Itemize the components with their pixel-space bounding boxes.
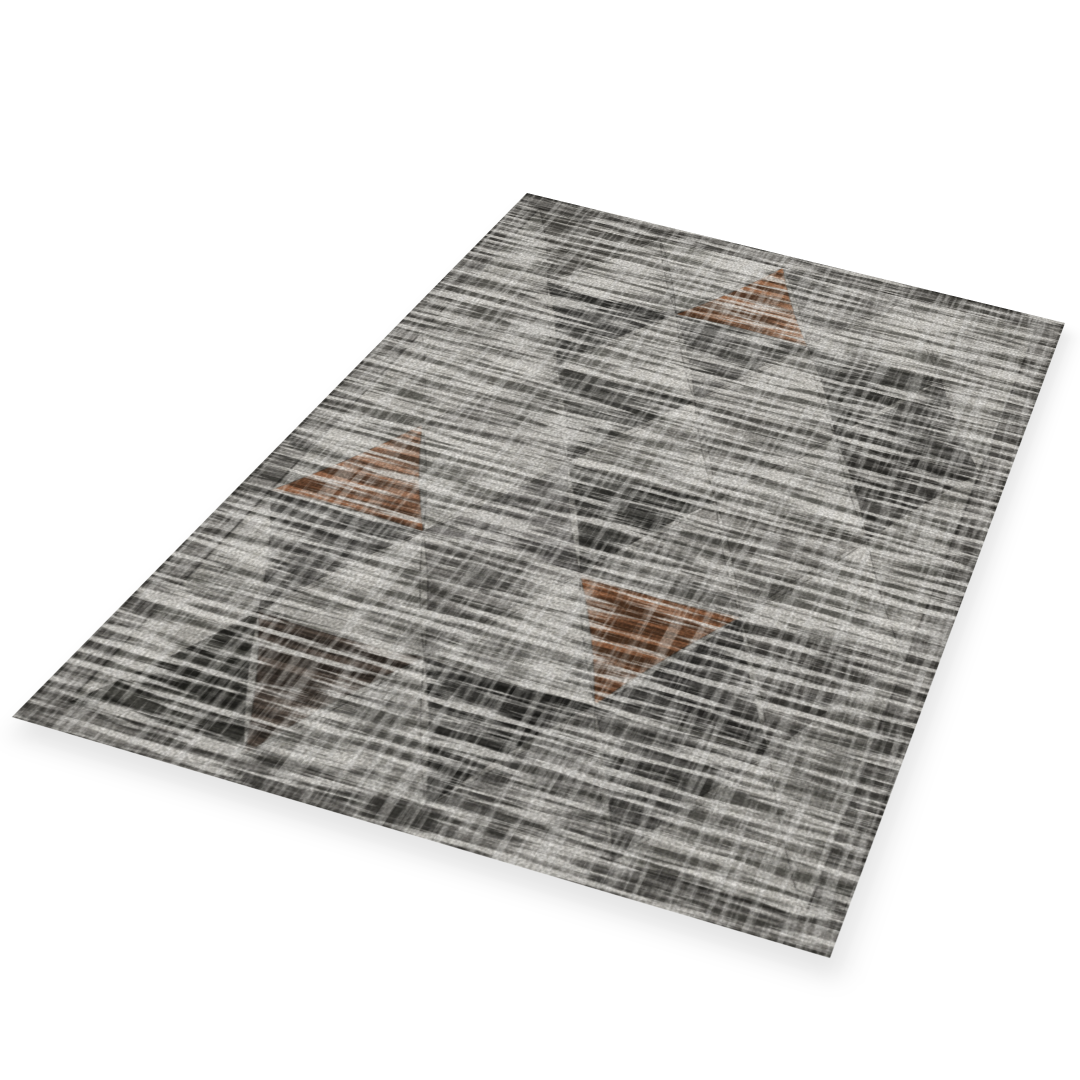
texture-grain [12,193,1065,958]
rug-canvas [12,193,1065,958]
product-photo-scene [0,0,1080,1080]
rug [12,193,1065,958]
